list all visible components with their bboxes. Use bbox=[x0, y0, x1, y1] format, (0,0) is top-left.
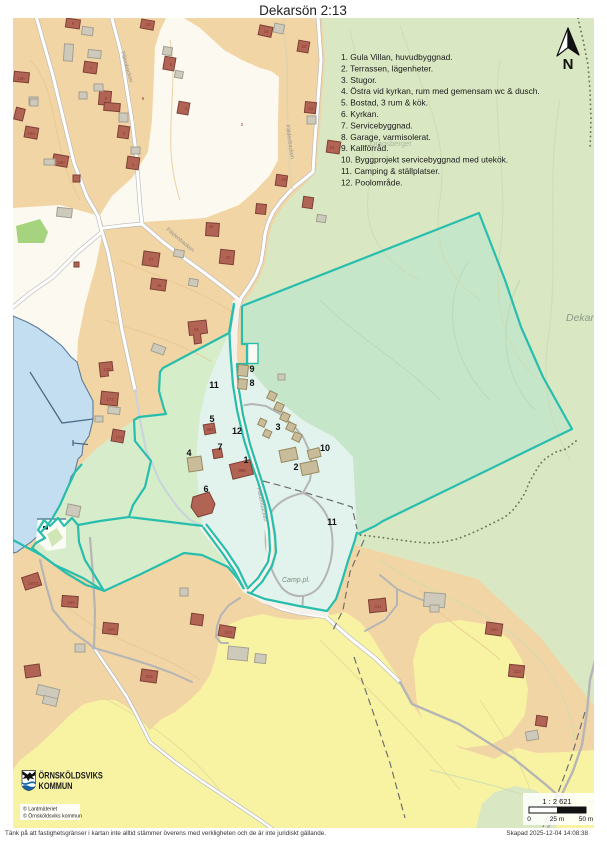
svg-text:310: 310 bbox=[490, 627, 498, 632]
svg-text:45: 45 bbox=[156, 283, 162, 288]
svg-text:ÖRNSKÖLDSVIKS: ÖRNSKÖLDSVIKS bbox=[39, 771, 104, 781]
svg-text:301: 301 bbox=[206, 427, 214, 432]
svg-text:16: 16 bbox=[263, 29, 269, 34]
svg-text:3: 3 bbox=[275, 422, 280, 432]
svg-text:50 m: 50 m bbox=[579, 816, 593, 823]
svg-text:160: 160 bbox=[57, 160, 65, 165]
svg-text:© Lantmäteriet: © Lantmäteriet bbox=[23, 806, 58, 813]
svg-text:310: 310 bbox=[107, 627, 115, 632]
svg-text:43: 43 bbox=[193, 327, 199, 332]
svg-text:1. Gula Villan, huvudbyggnad.: 1. Gula Villan, huvudbyggnad. bbox=[341, 52, 453, 62]
svg-text:315: 315 bbox=[145, 674, 153, 679]
svg-text:N: N bbox=[563, 56, 574, 73]
svg-text:1878: 1878 bbox=[28, 581, 39, 586]
svg-text:10. Byggprojekt servicebyggnad: 10. Byggprojekt servicebyggnad med utekö… bbox=[341, 155, 508, 165]
svg-text:30: 30 bbox=[208, 224, 214, 229]
svg-text:22: 22 bbox=[308, 106, 314, 111]
svg-text:Dekarsön 2:13: Dekarsön 2:13 bbox=[259, 3, 347, 18]
svg-text:4: 4 bbox=[186, 448, 191, 458]
svg-text:Tänk på att fastighetsgränser: Tänk på att fastighetsgränser i kartan i… bbox=[5, 829, 326, 837]
svg-text:© Örnsköldsviks kommun: © Örnsköldsviks kommun bbox=[23, 813, 82, 820]
svg-text:25 m: 25 m bbox=[550, 816, 564, 823]
svg-text:7: 7 bbox=[217, 442, 222, 452]
svg-text:1: 1 bbox=[243, 455, 248, 465]
svg-text:5: 5 bbox=[209, 414, 214, 424]
svg-text:5. Bostad, 3 rum & kök.: 5. Bostad, 3 rum & kök. bbox=[341, 98, 428, 108]
svg-text:173: 173 bbox=[115, 435, 123, 440]
svg-text:1 : 2 621: 1 : 2 621 bbox=[542, 797, 571, 806]
svg-text:9: 9 bbox=[249, 364, 254, 374]
svg-text:Skapad 2025-12-04 14:08:38: Skapad 2025-12-04 14:08:38 bbox=[506, 830, 588, 837]
svg-text:313: 313 bbox=[513, 669, 521, 674]
svg-text:166: 166 bbox=[27, 131, 35, 136]
svg-text:24: 24 bbox=[329, 145, 335, 150]
svg-text:11: 11 bbox=[327, 517, 337, 527]
svg-text:2. Terrassen, lägenheter.: 2. Terrassen, lägenheter. bbox=[341, 63, 433, 73]
svg-text:11. Camping & ställplatser.: 11. Camping & ställplatser. bbox=[341, 166, 440, 176]
svg-text:9. Kallförråd.: 9. Kallförråd. bbox=[341, 143, 388, 153]
svg-text:Camp.pl.: Camp.pl. bbox=[282, 577, 310, 584]
svg-text:166: 166 bbox=[67, 600, 75, 605]
svg-text:10: 10 bbox=[145, 22, 151, 27]
svg-text:28: 28 bbox=[225, 255, 231, 260]
svg-text:8. Garage, varmisolerat.: 8. Garage, varmisolerat. bbox=[341, 132, 431, 142]
svg-text:3. Stugor.: 3. Stugor. bbox=[341, 75, 377, 85]
svg-text:47: 47 bbox=[148, 257, 154, 262]
svg-text:2: 2 bbox=[293, 462, 298, 472]
svg-text:311: 311 bbox=[374, 604, 382, 609]
svg-text:20: 20 bbox=[301, 44, 307, 49]
svg-text:Dekars: Dekars bbox=[566, 312, 600, 324]
svg-text:12. Poolområde.: 12. Poolområde. bbox=[341, 177, 402, 187]
svg-text:10: 10 bbox=[320, 443, 330, 453]
svg-text:6. Kyrkan.: 6. Kyrkan. bbox=[341, 109, 379, 119]
svg-text:6: 6 bbox=[203, 484, 208, 494]
svg-text:166: 166 bbox=[17, 76, 25, 81]
svg-text:8: 8 bbox=[249, 378, 254, 388]
svg-text:7. Servicebyggnad.: 7. Servicebyggnad. bbox=[341, 120, 413, 130]
svg-text:313: 313 bbox=[224, 630, 232, 635]
svg-text:26: 26 bbox=[281, 177, 287, 182]
svg-text:4. Östra vid kyrkan, rum med g: 4. Östra vid kyrkan, rum med gemensam wc… bbox=[341, 86, 540, 96]
svg-text:172: 172 bbox=[106, 397, 114, 402]
svg-text:300: 300 bbox=[238, 468, 246, 473]
svg-text:11: 11 bbox=[209, 380, 219, 390]
svg-text:170: 170 bbox=[103, 367, 111, 372]
svg-text:12: 12 bbox=[232, 426, 242, 436]
svg-text:KOMMUN: KOMMUN bbox=[39, 781, 73, 791]
svg-text:0: 0 bbox=[527, 816, 531, 823]
